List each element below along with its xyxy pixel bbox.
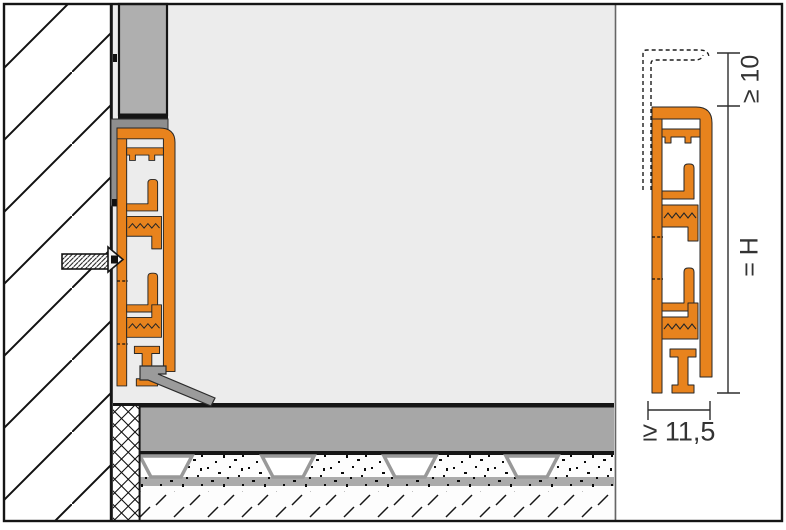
hidden-line-mark <box>112 199 117 206</box>
dimension-label-height: = H <box>738 237 763 277</box>
panel-bottom-line <box>118 114 168 119</box>
section-drawing <box>0 0 786 530</box>
dimension-label-width: ≥ 11,5 <box>643 419 716 446</box>
skirting-profile-detail <box>652 107 712 393</box>
profile-detail-view <box>643 50 740 420</box>
edge-insulation-strip <box>113 404 141 520</box>
dimension-label-overlap: ≥ 10 <box>739 55 764 103</box>
floor-surface-line <box>113 403 614 408</box>
floor-assembly <box>113 403 614 520</box>
technical-drawing-page: ≥ 10 = H ≥ 11,5 <box>0 0 786 530</box>
wall-covering-panel <box>119 4 167 115</box>
screw-drive <box>111 256 118 264</box>
hidden-line-mark <box>113 54 117 62</box>
main-section-view <box>4 4 616 522</box>
screed-layer <box>140 407 614 452</box>
